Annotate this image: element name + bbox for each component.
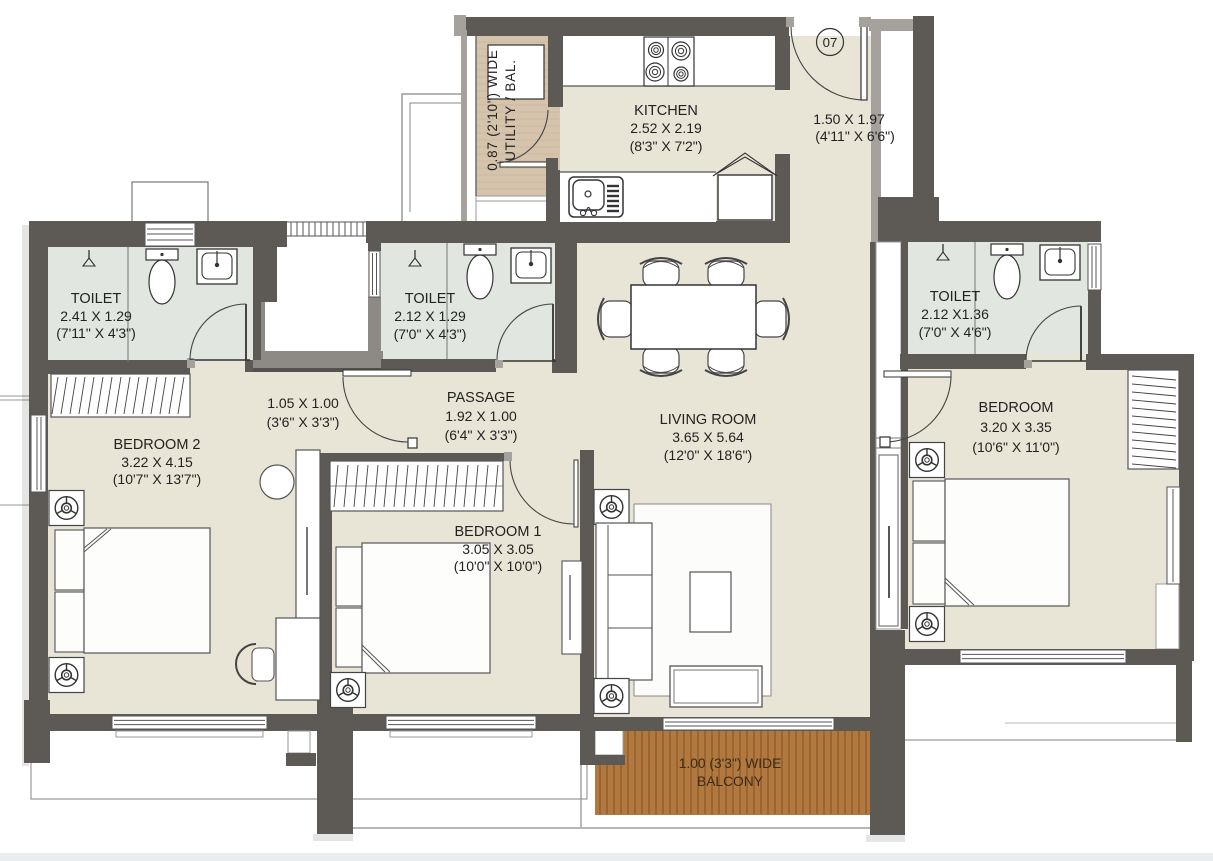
svg-text:1.50 X 1.97: 1.50 X 1.97 [813, 111, 885, 127]
svg-text:TOILET: TOILET [930, 289, 981, 305]
svg-text:3.20 X 3.35: 3.20 X 3.35 [980, 419, 1052, 435]
svg-text:3.05 X 3.05: 3.05 X 3.05 [462, 541, 534, 557]
svg-text:(10'0" X 10'0"): (10'0" X 10'0") [454, 558, 542, 574]
svg-text:2.12 X 1.29: 2.12 X 1.29 [394, 308, 466, 324]
svg-text:2.41 X 1.29: 2.41 X 1.29 [60, 308, 132, 324]
svg-text:LIVING ROOM: LIVING ROOM [660, 412, 757, 428]
svg-text:(12'0" X 18'6"): (12'0" X 18'6") [664, 447, 752, 463]
svg-text:(10'6" X 11'0"): (10'6" X 11'0") [972, 439, 1059, 455]
svg-text:07: 07 [823, 35, 838, 50]
svg-text:(6'4" X 3'3"): (6'4" X 3'3") [445, 427, 518, 443]
svg-text:3.22 X 4.15: 3.22 X 4.15 [121, 454, 193, 470]
svg-text:KITCHEN: KITCHEN [634, 103, 698, 119]
svg-text:(7'0" X 4'6"): (7'0" X 4'6") [919, 324, 992, 340]
svg-text:2.52 X 2.19: 2.52 X 2.19 [630, 120, 702, 136]
svg-text:PASSAGE: PASSAGE [447, 390, 516, 406]
svg-text:BEDROOM 1: BEDROOM 1 [454, 524, 541, 540]
svg-text:(7'11" X 4'3"): (7'11" X 4'3") [56, 325, 136, 341]
svg-text:(4'11" X 6'6"): (4'11" X 6'6") [815, 128, 895, 144]
svg-text:1.92 X 1.00: 1.92 X 1.00 [445, 408, 517, 424]
svg-text:UTILITY / BAL.: UTILITY / BAL. [503, 59, 518, 161]
svg-text:1.00 (3'3") WIDE: 1.00 (3'3") WIDE [679, 756, 782, 771]
svg-text:1.05 X 1.00: 1.05 X 1.00 [267, 395, 339, 411]
svg-text:0.87 (2'10") WIDE: 0.87 (2'10") WIDE [485, 49, 500, 171]
svg-text:TOILET: TOILET [405, 291, 456, 307]
svg-text:TOILET: TOILET [71, 291, 122, 307]
svg-text:(3'6" X 3'3"): (3'6" X 3'3") [267, 414, 340, 430]
svg-text:3.65 X 5.64: 3.65 X 5.64 [672, 429, 744, 445]
svg-text:(8'3" X 7'2"): (8'3" X 7'2") [630, 138, 703, 154]
svg-text:BEDROOM 2: BEDROOM 2 [113, 437, 200, 453]
svg-text:BALCONY: BALCONY [697, 774, 763, 789]
svg-text:2.12 X1.36: 2.12 X1.36 [921, 306, 989, 322]
svg-text:(7'0" X 4'3"): (7'0" X 4'3") [394, 326, 467, 342]
svg-text:BEDROOM: BEDROOM [979, 400, 1054, 416]
svg-text:(10'7" X 13'7"): (10'7" X 13'7") [113, 471, 201, 487]
